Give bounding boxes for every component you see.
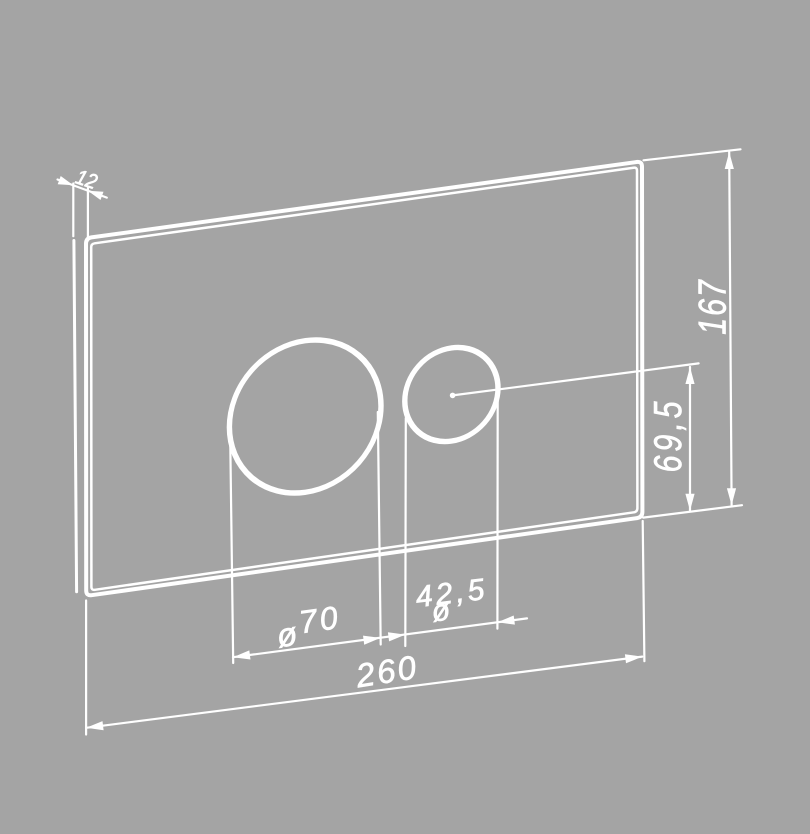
svg-text:70: 70 [297, 599, 343, 640]
svg-text:167: 167 [691, 278, 734, 335]
svg-text:69,5: 69,5 [646, 398, 689, 473]
